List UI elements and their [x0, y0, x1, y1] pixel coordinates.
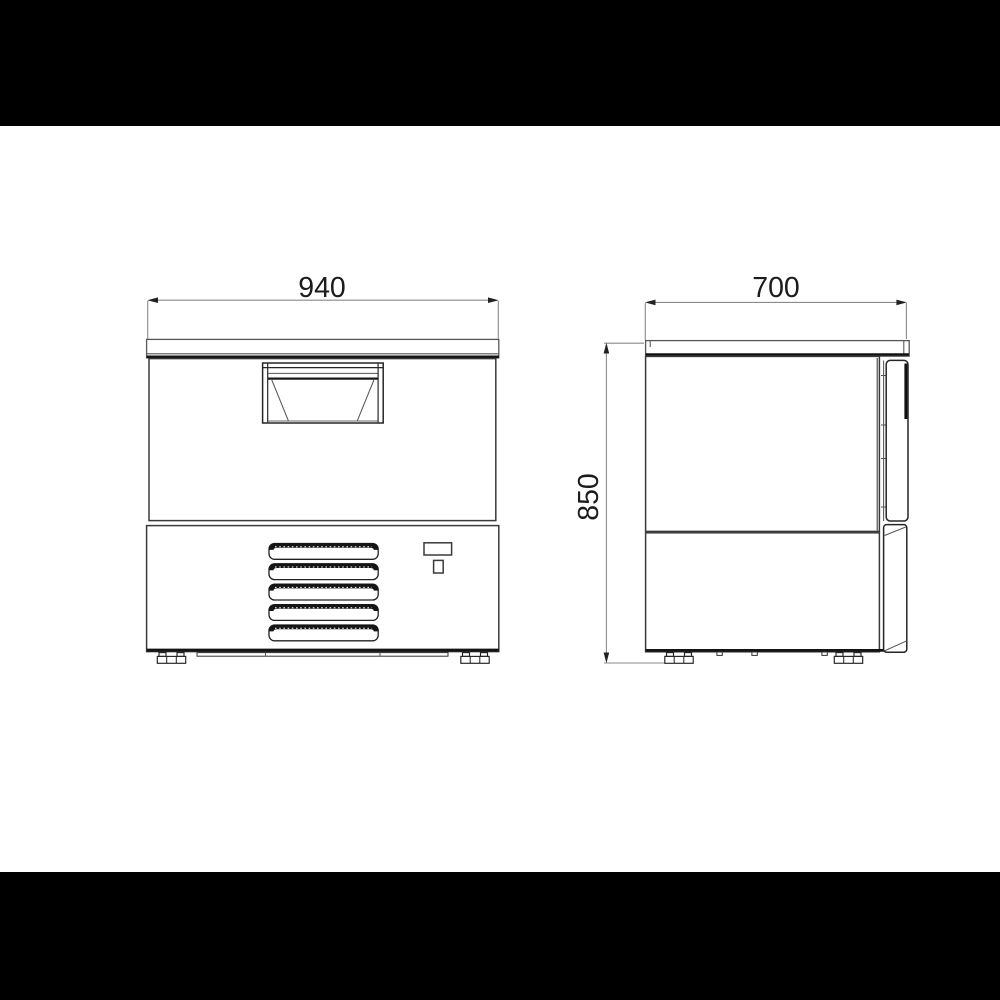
drawing-area: 940 — [0, 126, 1000, 872]
side-lower-panel — [884, 525, 907, 653]
front-right-foot — [461, 653, 489, 664]
top-letterbox — [0, 0, 1000, 126]
side-left-foot — [665, 653, 693, 664]
side-door-panel — [886, 360, 908, 521]
side-worktop — [646, 341, 910, 357]
front-view: 940 — [147, 272, 499, 663]
side-right-foot — [834, 653, 862, 664]
front-width-dimension: 940 — [147, 272, 498, 339]
ventilation-louvers — [269, 544, 378, 641]
power-switch — [434, 560, 444, 573]
side-depth-dimension-label: 700 — [752, 272, 800, 304]
side-height-dimension-label: 850 — [573, 473, 605, 521]
bottom-letterbox — [0, 872, 1000, 1000]
side-body — [646, 356, 880, 531]
side-view: 700 850 — [573, 272, 909, 663]
technical-drawing-page: 940 — [0, 0, 1000, 1000]
front-plinth — [197, 653, 448, 657]
front-worktop — [147, 339, 499, 357]
front-width-dimension-label: 940 — [298, 272, 346, 304]
display-window — [424, 543, 452, 555]
refrigerated-cabinet-drawing: 940 — [0, 126, 1000, 872]
front-door-handle — [263, 363, 384, 423]
front-left-foot — [157, 653, 185, 664]
side-compressor-base — [646, 533, 886, 652]
side-depth-dimension: 700 — [645, 272, 907, 340]
